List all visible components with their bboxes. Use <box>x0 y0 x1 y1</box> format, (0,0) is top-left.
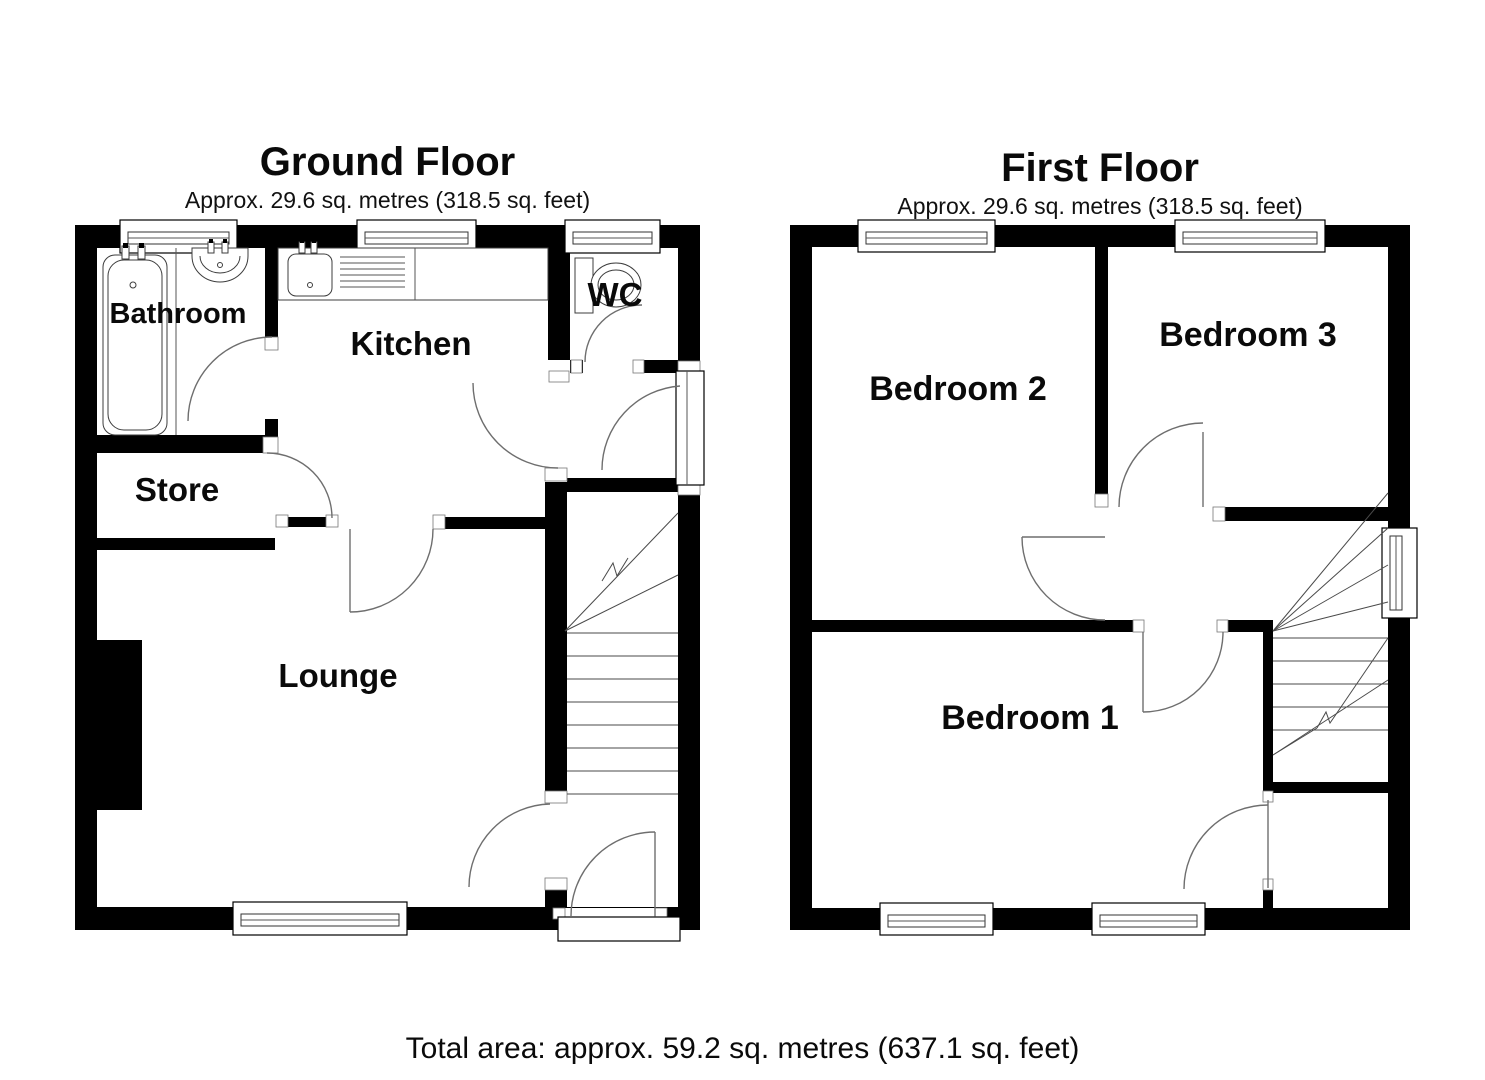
lounge-window <box>233 902 407 935</box>
bedroom1-window-right <box>1092 903 1205 935</box>
wc-label: WC <box>588 276 643 313</box>
bedroom1-window-left <box>880 903 993 935</box>
bedroom2-label: Bedroom 2 <box>869 370 1047 408</box>
ground-floor-title: Ground Floor <box>75 140 700 184</box>
total-area-text: Total area: approx. 59.2 sq. metres (637… <box>0 1032 1485 1066</box>
floorplan-page: Ground Floor Approx. 29.6 sq. metres (31… <box>0 0 1485 1080</box>
wc-window <box>565 220 660 253</box>
first-floor-plan: Bedroom 2 Bedroom 3 Bedroom 1 <box>778 213 1432 947</box>
bedroom1-label: Bedroom 1 <box>941 699 1119 737</box>
lounge-label: Lounge <box>278 657 397 694</box>
ground-floor-plan: Bathroom Kitchen WC Store Lounge <box>63 213 712 947</box>
front-porch <box>558 917 680 941</box>
kitchen-counter-icon <box>278 239 548 300</box>
bedroom3-window <box>1175 220 1325 252</box>
ground-floor-subtitle: Approx. 29.6 sq. metres (318.5 sq. feet) <box>55 187 720 214</box>
side-porch <box>676 371 704 485</box>
bedroom2-window <box>858 220 995 252</box>
bathroom-label: Bathroom <box>110 298 247 330</box>
chimney-breast <box>97 640 142 810</box>
bathtub-icon <box>103 243 176 435</box>
kitchen-label: Kitchen <box>350 325 471 362</box>
bedroom3-label: Bedroom 3 <box>1159 316 1337 354</box>
store-label: Store <box>135 471 219 508</box>
first-floor-title: First Floor <box>790 146 1410 190</box>
landing-window <box>1382 528 1417 618</box>
